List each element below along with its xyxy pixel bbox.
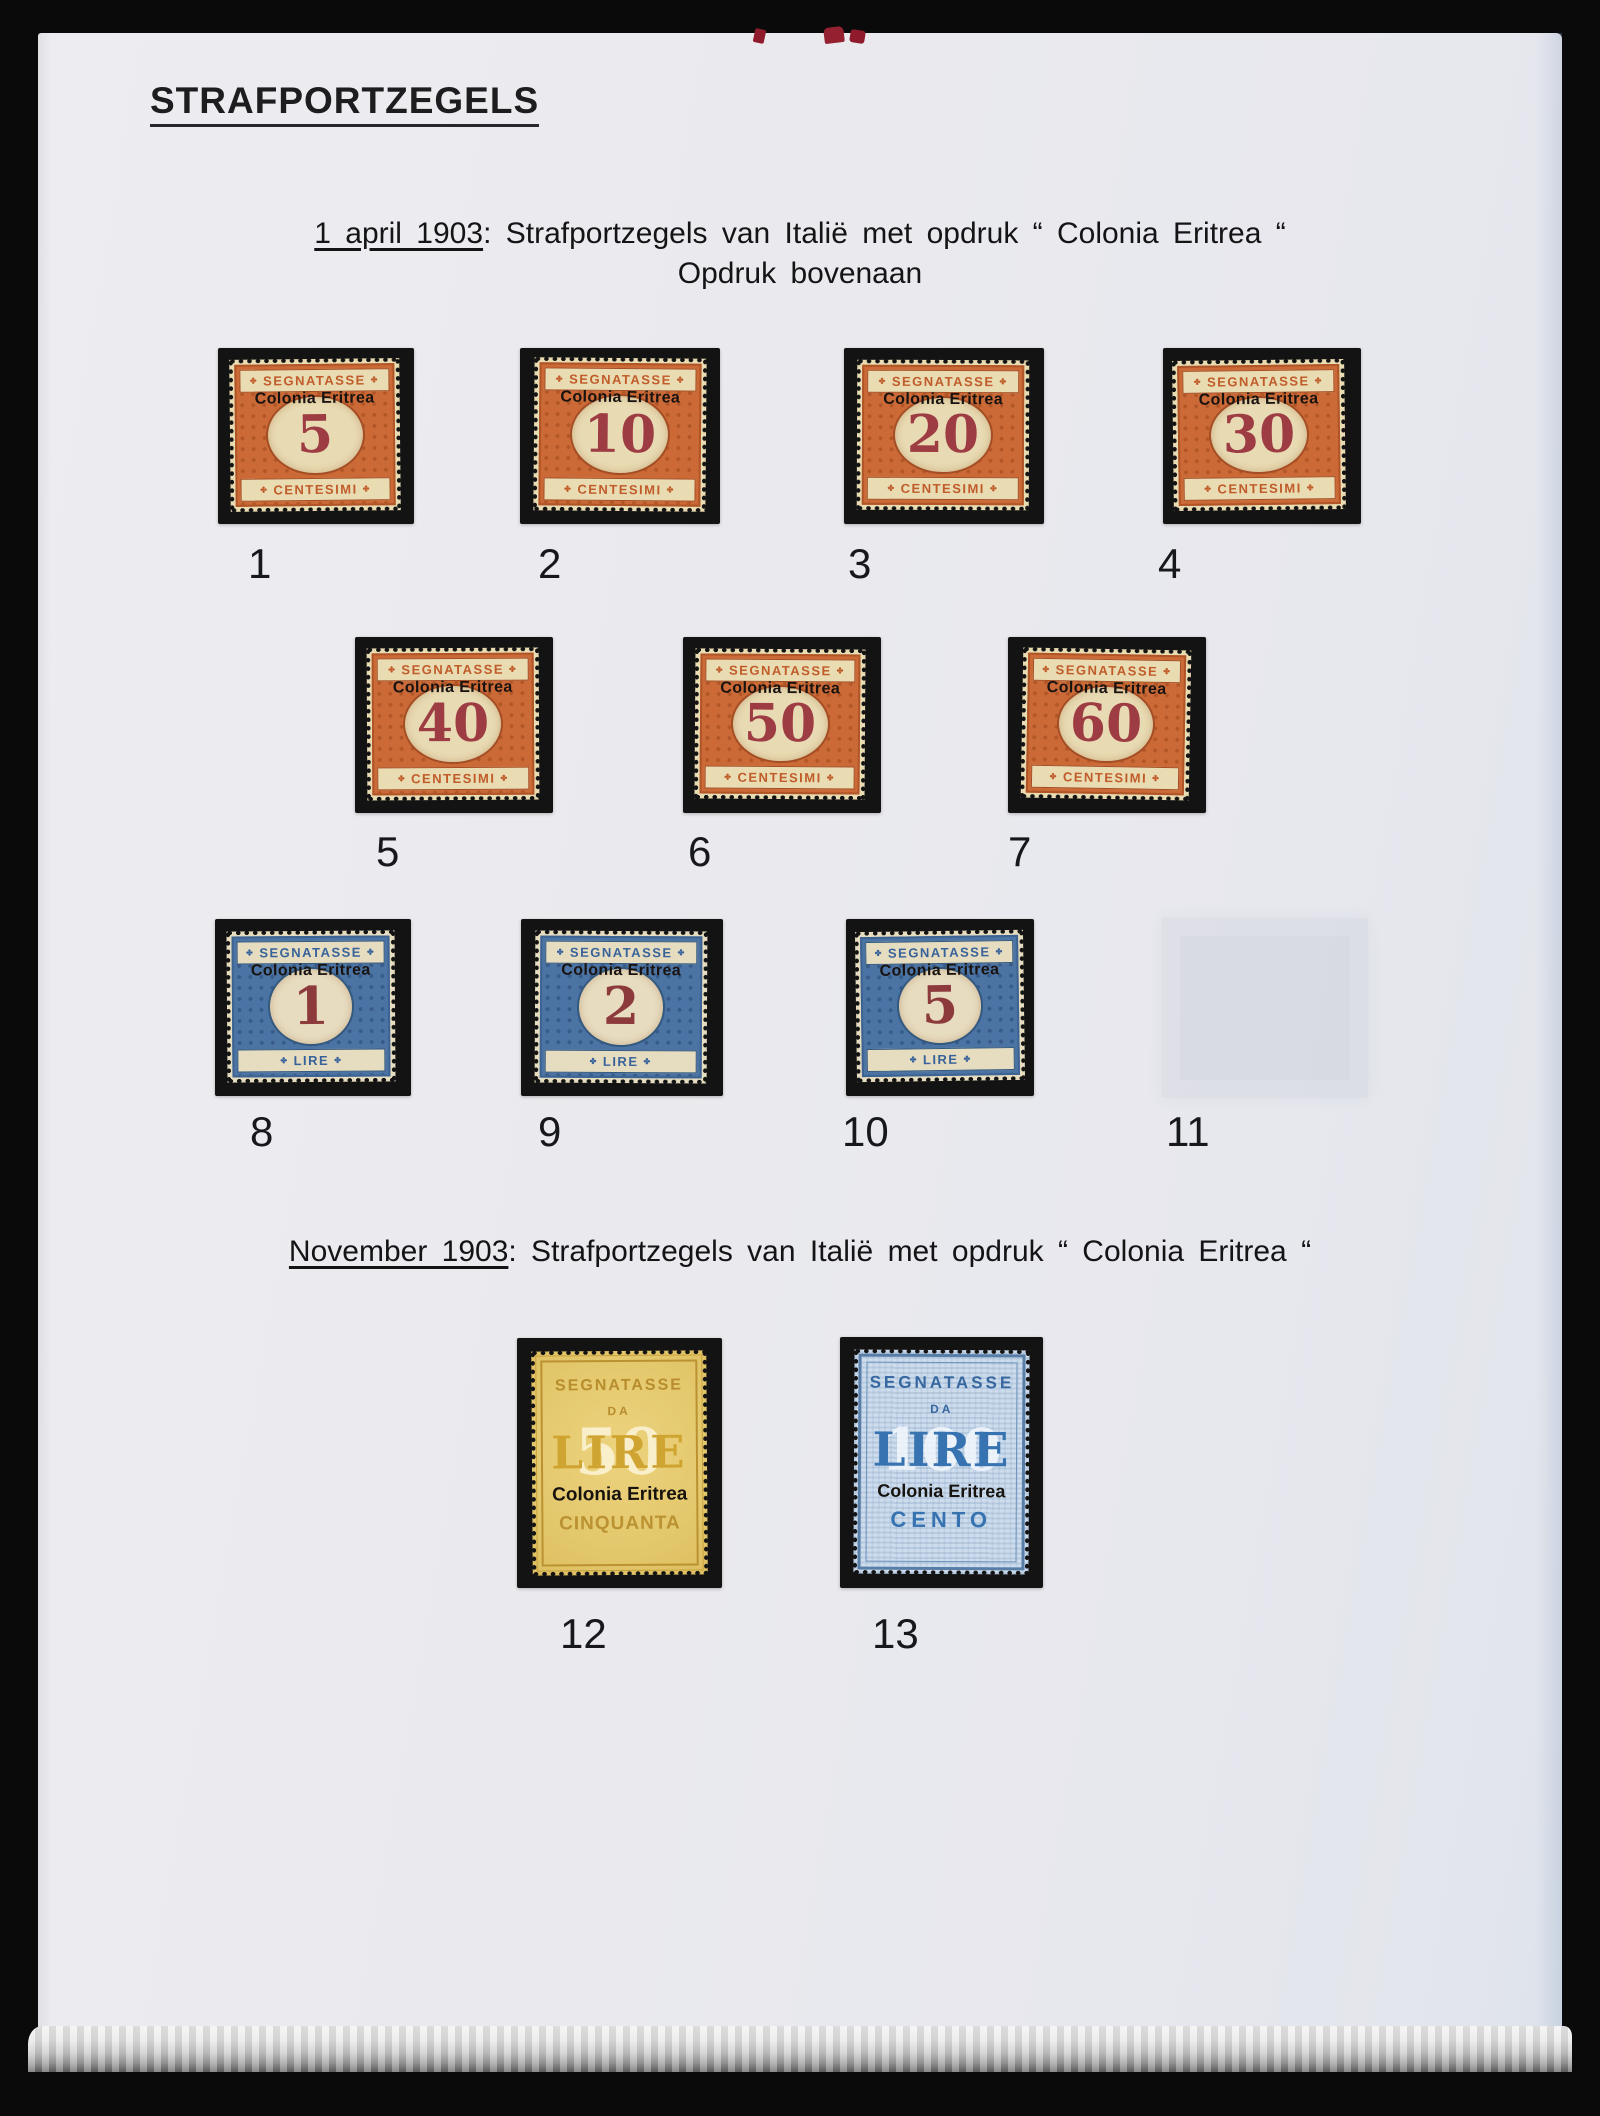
stamp-frame: ✤SEGNATASSE✤ 5 ✤CENTESIMI✤ Colonia Eritr… [234,363,395,507]
stamp-footer-text: LIRE [294,1053,330,1068]
stamp-header-text: SEGNATASSE [1207,373,1310,389]
stamp-header-text: SEGNATASSE [555,1377,683,1396]
stamp-value: 10 [584,408,657,461]
stamp-value: 1 [293,980,330,1032]
rosette-icon: ✤ [500,774,508,782]
stamp-3: ✤SEGNATASSE✤ 20 ✤CENTESIMI✤ Colonia Erit… [857,360,1030,511]
stamp-mount-7: ✤SEGNATASSE✤ 60 ✤CENTESIMI✤ Colonia Erit… [1008,637,1206,813]
stamp-header-text: SEGNATASSE [263,372,366,388]
stamp-footer-band: ✤CENTESIMI✤ [543,477,695,501]
stamp-footer-text: CENTESIMI [1217,480,1301,496]
rosette-icon: ✤ [1204,485,1212,493]
stamp-mount-4: ✤SEGNATASSE✤ 30 ✤CENTESIMI✤ Colonia Erit… [1163,348,1361,524]
stamp-value: 2 [603,981,639,1033]
stamp-5: ✤SEGNATASSE✤ 40 ✤CENTESIMI✤ Colonia Erit… [367,648,540,801]
stamp-footer-band: ✤CENTESIMI✤ [1031,765,1179,791]
stamp-number-label: 6 [688,828,711,876]
rosette-icon: ✤ [667,486,675,494]
stamp-frame: ✤SEGNATASSE✤ 40 ✤CENTESIMI✤ Colonia Erit… [372,653,535,796]
stamp-lire-block: 50 LIRE [542,1420,697,1483]
stamp-mount-10: ✤SEGNATASSE✤ 5 ✤LIRE✤ Colonia Eritrea [846,919,1034,1096]
heading-april-1903: 1 april 1903: Strafportzegels van Italië… [38,214,1562,294]
stamp-lire-text: LIRE [542,1420,697,1483]
stamp-footer-text: LIRE [923,1052,959,1067]
rosette-icon: ✤ [887,484,895,492]
stamp-footer-band: ✤LIRE✤ [237,1048,385,1072]
rosette-icon: ✤ [509,665,517,673]
stamp-footer-text: CENTESIMI [1063,769,1148,785]
stamp-footer-band: ✤CENTESIMI✤ [377,767,529,791]
rosette-icon: ✤ [1152,774,1160,782]
stamp-9: ✤SEGNATASSE✤ 2 ✤LIRE✤ Colonia Eritrea [535,931,708,1084]
stamp-overprint: Colonia Eritrea [237,389,393,409]
red-ink-mark [823,26,845,44]
sleeve-bottom-edge [28,2026,1572,2072]
stamp-frame: ✤SEGNATASSE✤ 1 ✤LIRE✤ Colonia Eritrea [232,935,391,1077]
red-ink-mark [849,29,866,44]
heading-april-line1: 1 april 1903: Strafportzegels van Italië… [38,214,1562,254]
stamp-lire-block: 100 LIRE [864,1419,1019,1482]
stamp-mount-6: ✤SEGNATASSE✤ 50 ✤CENTESIMI✤ Colonia Erit… [683,637,881,813]
stamp-4: ✤SEGNATASSE✤ 30 ✤CENTESIMI✤ Colonia Erit… [1172,359,1346,511]
rosette-icon: ✤ [398,775,406,783]
stamp-value: 5 [297,409,334,461]
rosette-icon: ✤ [1163,667,1171,675]
stamp-overprint: Colonia Eritrea [862,961,1016,981]
stamp-text-column: SEGNATASSE DA 100 LIRE Colonia Eritrea C… [863,1360,1019,1565]
stamp-mount-1: ✤SEGNATASSE✤ 5 ✤CENTESIMI✤ Colonia Eritr… [218,348,414,524]
stamp-value: 60 [1069,697,1142,750]
stamp-frame: ✤SEGNATASSE✤ 2 ✤LIRE✤ Colonia Eritrea [540,936,703,1079]
stamp-overprint: Colonia Eritrea [541,388,699,407]
stamp-header-text: SEGNATASSE [729,663,832,679]
stamp-footer-band: ✤CENTESIMI✤ [705,765,855,789]
stamp-footer-text: LIRE [603,1054,639,1069]
rosette-icon: ✤ [557,948,565,956]
stamp-number-label: 3 [848,540,871,588]
rosette-icon: ✤ [996,948,1004,956]
scroll-ornament-icon: ✤ [964,1055,972,1063]
stamp-mount-5: ✤SEGNATASSE✤ 40 ✤CENTESIMI✤ Colonia Erit… [355,637,553,813]
stamp-overprint: Colonia Eritrea [702,679,858,698]
stamp-value: 30 [1222,409,1295,462]
rosette-icon: ✤ [1194,378,1202,386]
stamp-mount-2: ✤SEGNATASSE✤ 10 ✤CENTESIMI✤ Colonia Erit… [520,348,720,524]
heading-november-date: November 1903 [289,1235,508,1268]
removed-stamp-ghost-11 [1162,918,1368,1098]
stamp-header-text: SEGNATASSE [892,374,995,389]
scroll-ornament-icon: ✤ [910,1056,918,1064]
page-title: STRAFPORTZEGELS [150,80,539,127]
stamp-number-label: 13 [872,1610,919,1658]
stamp-10: ✤SEGNATASSE✤ 5 ✤LIRE✤ Colonia Eritrea [855,930,1025,1082]
rosette-icon: ✤ [1042,665,1050,673]
stamp-lire-text: LIRE [864,1419,1019,1482]
stamp-frame: ✤SEGNATASSE✤ 30 ✤CENTESIMI✤ Colonia Erit… [1177,364,1341,506]
stamp-bottom-text: CENTO [890,1507,992,1534]
stamp-12: SEGNATASSE DA 50 LIRE Colonia Eritrea CI… [531,1350,708,1575]
stamp-header-text: SEGNATASSE [570,945,673,961]
stamp-footer-text: CENTESIMI [273,482,357,498]
stamp-overprint: Colonia Eritrea [374,679,532,698]
stamp-number-label: 1 [248,540,271,588]
heading-november-line1: November 1903: Strafportzegels van Itali… [38,1232,1562,1272]
stamp-2: ✤SEGNATASSE✤ 10 ✤CENTESIMI✤ Colonia Erit… [533,357,706,511]
stamp-footer-text: CENTESIMI [411,771,495,786]
stamp-header-text: SEGNATASSE [870,1373,1015,1394]
stamp-number-label: 10 [842,1108,889,1156]
rosette-icon: ✤ [250,377,258,385]
rosette-icon: ✤ [564,485,572,493]
stamp-number-label: 7 [1008,828,1031,876]
stamp-footer-band: ✤LIRE✤ [867,1047,1015,1072]
stamp-header-text: SEGNATASSE [259,945,362,961]
stamp-mount-12: SEGNATASSE DA 50 LIRE Colonia Eritrea CI… [517,1338,722,1588]
stamp-header-band: ✤SEGNATASSE✤ [867,370,1019,394]
stamp-frame: ✤SEGNATASSE✤ 10 ✤CENTESIMI✤ Colonia Erit… [538,362,701,506]
stamp-header-text: SEGNATASSE [888,944,991,960]
stamp-value: 50 [744,698,817,751]
stamp-mount-13: SEGNATASSE DA 100 LIRE Colonia Eritrea C… [840,1337,1043,1588]
stamp-number-label: 4 [1158,540,1181,588]
album-page-photo: STRAFPORTZEGELS 1 april 1903: Strafportz… [0,0,1600,2116]
stamp-value: 40 [417,698,490,750]
heading-november-1903: November 1903: Strafportzegels van Itali… [38,1232,1562,1272]
stamp-footer-band: ✤LIRE✤ [545,1050,697,1074]
stamp-footer-text: CENTESIMI [901,481,985,496]
stamp-number-label: 12 [560,1610,607,1658]
stamp-number-label: 8 [250,1108,273,1156]
heading-april-date: 1 april 1903 [314,217,483,250]
stamp-header-text: SEGNATASSE [1055,662,1158,679]
rosette-icon: ✤ [367,948,375,956]
rosette-icon: ✤ [371,376,379,384]
rosette-icon: ✤ [260,486,268,494]
stamp-mount-9: ✤SEGNATASSE✤ 2 ✤LIRE✤ Colonia Eritrea [521,919,723,1096]
stamp-frame: ✤SEGNATASSE✤ 60 ✤CENTESIMI✤ Colonia Erit… [1026,653,1186,796]
stamp-overprint: Colonia Eritrea [234,961,388,980]
stamp-footer-band: ✤CENTESIMI✤ [867,477,1019,501]
stamp-value: 20 [907,409,980,461]
heading-november-text: : Strafportzegels van Italië met opdruk … [508,1235,1311,1268]
stamp-overprint: Colonia Eritrea [1029,679,1183,700]
stamp-13: SEGNATASSE DA 100 LIRE Colonia Eritrea C… [853,1350,1029,1575]
stamp-mount-3: ✤SEGNATASSE✤ 20 ✤CENTESIMI✤ Colonia Erit… [844,348,1044,524]
stamp-number-label: 2 [538,540,561,588]
heading-april-line2: Opdruk bovenaan [38,254,1562,294]
rosette-icon: ✤ [875,949,883,957]
rosette-icon: ✤ [1050,773,1058,781]
stamp-overprint: Colonia Eritrea [1179,390,1337,410]
rosette-icon: ✤ [246,949,254,957]
stamp-mount-8: ✤SEGNATASSE✤ 1 ✤LIRE✤ Colonia Eritrea [215,919,411,1096]
stamp-overprint: Colonia Eritrea [864,391,1022,410]
rosette-icon: ✤ [716,666,724,674]
rosette-icon: ✤ [827,774,835,782]
stamp-overprint: Colonia Eritrea [542,962,700,981]
stamp-header-text: SEGNATASSE [569,372,672,388]
stamp-header-text: SEGNATASSE [401,662,504,678]
stamp-frame: ✤SEGNATASSE✤ 5 ✤LIRE✤ Colonia Eritrea [860,935,1020,1077]
stamp-number-label: 5 [376,828,399,876]
rosette-icon: ✤ [678,949,686,957]
stamp-text-column: SEGNATASSE DA 50 LIRE Colonia Eritrea CI… [541,1360,697,1565]
rosette-icon: ✤ [556,375,564,383]
stamp-7: ✤SEGNATASSE✤ 60 ✤CENTESIMI✤ Colonia Erit… [1021,648,1192,801]
scroll-ornament-icon: ✤ [590,1057,598,1065]
stamp-6: ✤SEGNATASSE✤ 50 ✤CENTESIMI✤ Colonia Erit… [694,648,865,799]
rosette-icon: ✤ [1307,484,1315,492]
rosette-icon: ✤ [990,485,998,493]
stamp-1: ✤SEGNATASSE✤ 5 ✤CENTESIMI✤ Colonia Eritr… [229,358,401,512]
stamp-da-text: DA [930,1402,953,1416]
stamp-8: ✤SEGNATASSE✤ 1 ✤LIRE✤ Colonia Eritrea [226,930,395,1082]
scroll-ornament-icon: ✤ [644,1058,652,1066]
stamp-frame: ✤SEGNATASSE✤ 20 ✤CENTESIMI✤ Colonia Erit… [862,365,1024,506]
rosette-icon: ✤ [677,376,685,384]
rosette-icon: ✤ [1000,378,1008,386]
rosette-icon: ✤ [837,667,845,675]
stamp-value: 5 [922,980,959,1033]
rosette-icon: ✤ [879,377,887,385]
stamp-footer-band: ✤CENTESIMI✤ [1184,476,1336,501]
stamp-number-label: 9 [538,1108,561,1156]
stamp-footer-text: CENTESIMI [737,770,821,786]
heading-april-text: : Strafportzegels van Italië met opdruk … [483,217,1286,250]
rosette-icon: ✤ [388,666,396,674]
stamp-frame: ✤SEGNATASSE✤ 50 ✤CENTESIMI✤ Colonia Erit… [700,653,861,794]
scroll-ornament-icon: ✤ [280,1057,288,1065]
rosette-icon: ✤ [363,485,371,493]
stamp-footer-text: CENTESIMI [577,482,661,498]
stamp-bottom-text: CINQUANTA [559,1513,681,1536]
rosette-icon: ✤ [1315,377,1323,385]
scroll-ornament-icon: ✤ [334,1056,342,1064]
rosette-icon: ✤ [724,773,732,781]
stamp-number-label: 11 [1166,1108,1210,1156]
stamp-footer-band: ✤CENTESIMI✤ [240,477,390,502]
